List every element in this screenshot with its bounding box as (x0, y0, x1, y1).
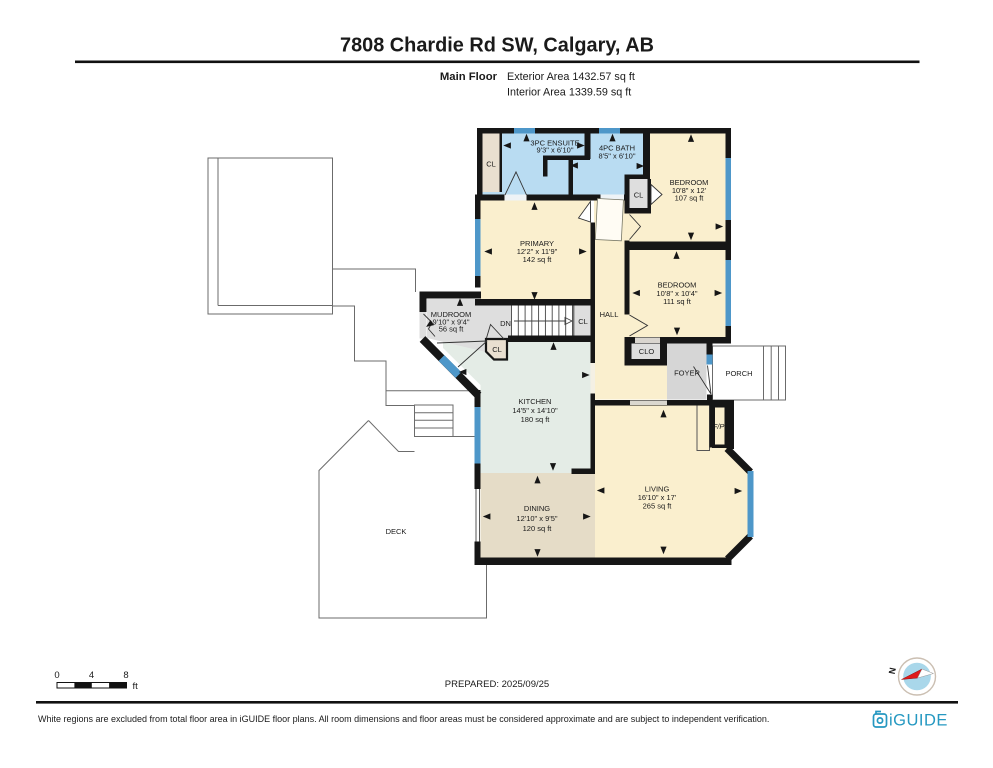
svg-text:9'3" x 6'10": 9'3" x 6'10" (537, 146, 574, 155)
svg-text:N: N (887, 667, 898, 675)
svg-text:180 sq ft: 180 sq ft (521, 415, 551, 424)
svg-text:KITCHEN: KITCHEN (519, 397, 552, 406)
svg-text:White regions are excluded fro: White regions are excluded from total fl… (38, 714, 769, 724)
svg-text:FOYER: FOYER (674, 368, 700, 377)
svg-text:Interior Area 1339.59 sq ft: Interior Area 1339.59 sq ft (507, 86, 631, 98)
svg-text:265 sq ft: 265 sq ft (643, 501, 673, 510)
svg-text:12'10" x 9'5": 12'10" x 9'5" (516, 514, 557, 523)
svg-text:CL: CL (634, 190, 644, 199)
svg-text:Exterior Area 1432.57 sq ft: Exterior Area 1432.57 sq ft (507, 71, 635, 83)
svg-text:8'5" x 6'10": 8'5" x 6'10" (599, 151, 636, 160)
svg-text:4: 4 (89, 670, 94, 681)
svg-text:Main Floor: Main Floor (440, 71, 498, 83)
svg-text:142 sq ft: 142 sq ft (523, 255, 553, 264)
svg-text:DINING: DINING (524, 504, 550, 513)
svg-text:HALL: HALL (600, 310, 619, 319)
svg-text:120 sq ft: 120 sq ft (523, 524, 553, 533)
svg-text:CL: CL (486, 159, 496, 168)
svg-text:7808 Chardie Rd SW, Calgary, A: 7808 Chardie Rd SW, Calgary, AB (340, 34, 654, 56)
svg-text:ft: ft (133, 681, 139, 692)
svg-text:F/P: F/P (713, 422, 725, 431)
svg-text:DN: DN (500, 319, 511, 328)
svg-text:PREPARED: 2025/09/25: PREPARED: 2025/09/25 (445, 679, 549, 690)
svg-text:0: 0 (54, 670, 59, 681)
svg-text:111 sq ft: 111 sq ft (663, 297, 692, 306)
svg-text:PORCH: PORCH (725, 369, 752, 378)
svg-text:56 sq ft: 56 sq ft (439, 324, 465, 333)
svg-text:iGUIDE: iGUIDE (889, 711, 948, 729)
svg-text:CL: CL (492, 345, 502, 354)
svg-text:CLO: CLO (639, 347, 655, 356)
svg-text:14'5" x 14'10": 14'5" x 14'10" (512, 406, 558, 415)
svg-text:107 sq ft: 107 sq ft (675, 193, 705, 202)
svg-text:DECK: DECK (386, 527, 407, 536)
svg-text:8: 8 (123, 670, 128, 681)
svg-text:CL: CL (578, 317, 588, 326)
